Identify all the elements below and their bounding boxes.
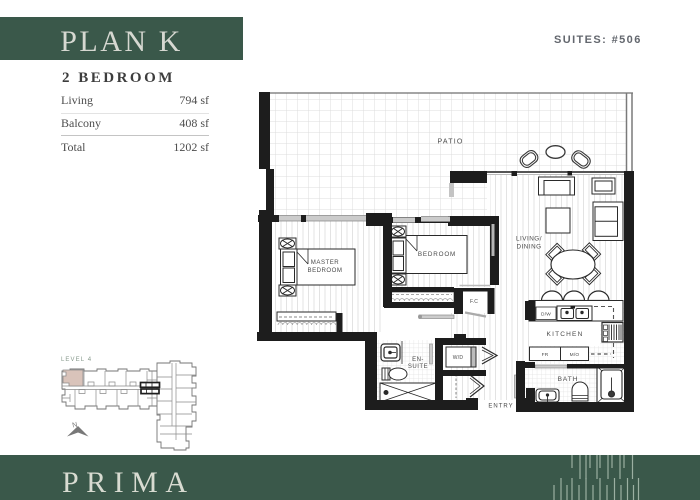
svg-text:SUITE: SUITE xyxy=(408,364,428,370)
svg-text:FR: FR xyxy=(542,352,549,358)
svg-text:LEVEL 4: LEVEL 4 xyxy=(61,357,92,363)
svg-text:LIVING/: LIVING/ xyxy=(516,236,542,243)
svg-text:DINING: DINING xyxy=(516,244,541,251)
svg-text:BEDROOM: BEDROOM xyxy=(418,251,456,258)
svg-text:KITCHEN: KITCHEN xyxy=(547,331,584,338)
svg-text:ENTRY: ENTRY xyxy=(488,404,513,410)
svg-text:MASTER: MASTER xyxy=(311,259,339,266)
svg-text:EN-: EN- xyxy=(412,357,424,363)
svg-text:D/W: D/W xyxy=(541,312,551,318)
svg-text:W/D: W/D xyxy=(453,355,464,361)
svg-text:BEDROOM: BEDROOM xyxy=(308,267,343,274)
svg-text:BATH: BATH xyxy=(558,376,579,383)
svg-text:M/O: M/O xyxy=(570,352,580,358)
svg-text:F.C: F.C xyxy=(470,299,478,305)
svg-text:PATIO: PATIO xyxy=(438,139,464,146)
